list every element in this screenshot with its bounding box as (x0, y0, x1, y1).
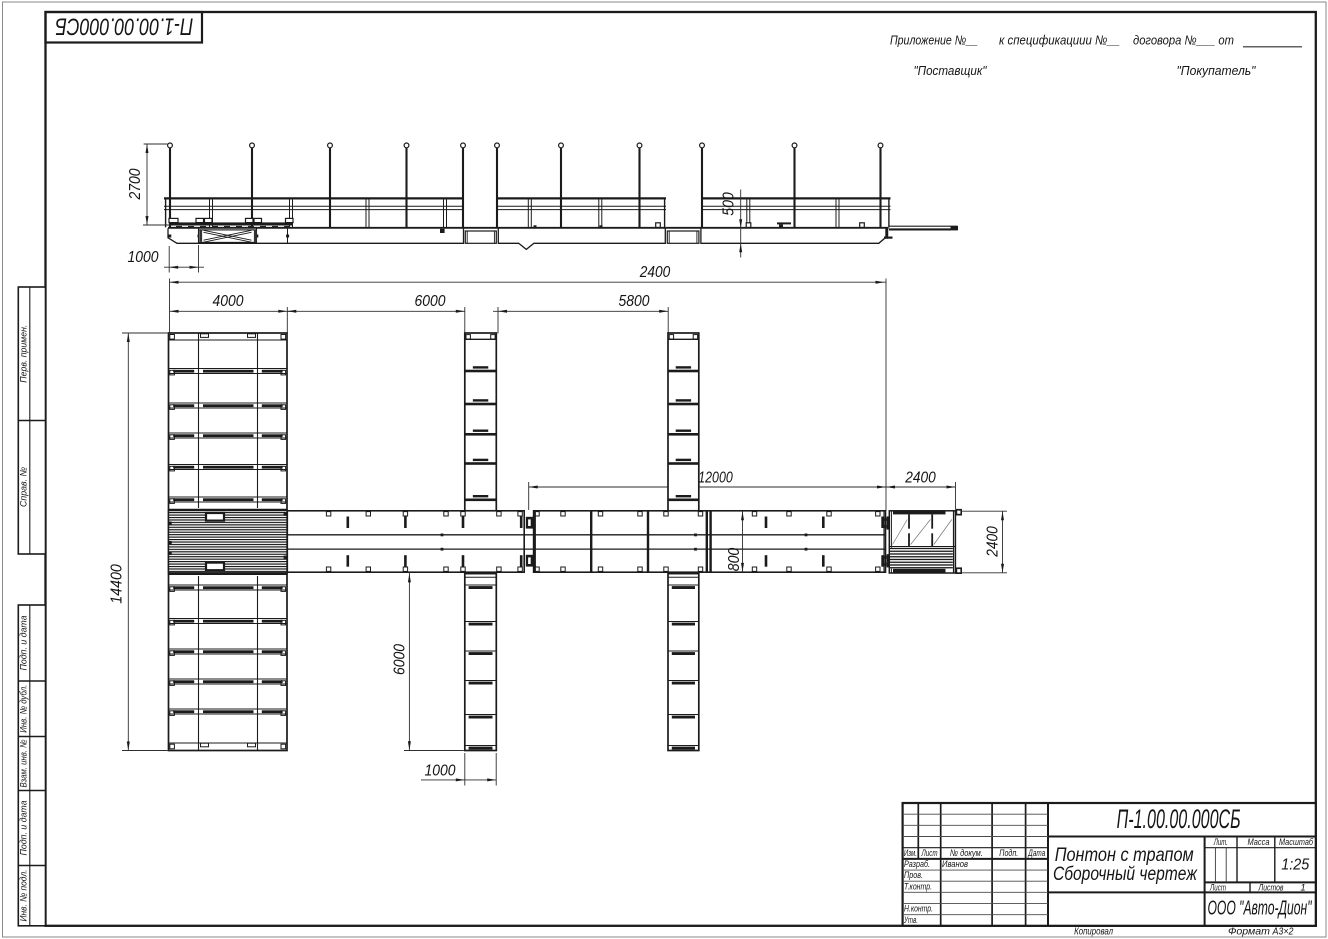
svg-text:Взам. инв. №: Взам. инв. № (18, 740, 29, 788)
svg-text:Дата: Дата (1028, 848, 1046, 859)
svg-text:Перв. примен.: Перв. примен. (18, 325, 29, 383)
svg-text:№ докум.: № докум. (950, 848, 983, 859)
svg-text:ООО "Авто-Дион": ООО "Авто-Дион" (1208, 898, 1313, 920)
svg-text:Утв.: Утв. (903, 915, 918, 926)
svg-text:Лист: Лист (921, 848, 938, 859)
svg-text:Формат: Формат (1228, 926, 1270, 938)
svg-text:Масштаб: Масштаб (1279, 837, 1314, 848)
svg-text:12000: 12000 (698, 469, 733, 486)
svg-text:1000: 1000 (425, 762, 456, 779)
svg-text:к спецификациии №__: к спецификациии №__ (999, 33, 1120, 48)
svg-text:Лист: Лист (1209, 883, 1226, 894)
svg-text:Инв. № дубл.: Инв. № дубл. (18, 685, 29, 733)
svg-text:Изм.: Изм. (904, 848, 917, 859)
svg-text:Подп. и дата: Подп. и дата (18, 616, 29, 671)
svg-text:4000: 4000 (213, 293, 244, 310)
svg-text:Копировал: Копировал (1074, 926, 1113, 938)
svg-text:2400: 2400 (639, 264, 671, 281)
svg-text:6000: 6000 (415, 293, 446, 310)
svg-text:Листов: Листов (1258, 883, 1284, 894)
svg-text:6000: 6000 (392, 644, 409, 675)
svg-text:А3×2: А3×2 (1272, 926, 1294, 938)
svg-text:Пров.: Пров. (904, 870, 923, 881)
svg-text:Понтон с трапом: Понтон с трапом (1055, 845, 1194, 866)
svg-text:Подп. и дата: Подп. и дата (18, 801, 29, 856)
svg-text:800: 800 (726, 547, 743, 571)
svg-text:2400: 2400 (985, 526, 1002, 558)
svg-text:1000: 1000 (128, 249, 159, 266)
svg-text:2700: 2700 (127, 168, 144, 200)
svg-text:2400: 2400 (904, 469, 936, 486)
svg-text:договора №___ от: договора №___ от (1133, 33, 1234, 48)
svg-text:Справ. №: Справ. № (18, 467, 29, 507)
svg-text:14400: 14400 (109, 564, 126, 604)
svg-text:Т.контр.: Т.контр. (904, 881, 932, 892)
svg-text:Масса: Масса (1248, 837, 1270, 848)
svg-text:1:25: 1:25 (1281, 857, 1309, 874)
svg-text:1: 1 (1300, 883, 1305, 894)
svg-text:"Поставщик": "Поставщик" (914, 64, 988, 78)
svg-text:Приложение №__: Приложение №__ (890, 33, 978, 48)
svg-text:Н.контр.: Н.контр. (904, 904, 933, 915)
svg-text:П-1.00.00.000СБ: П-1.00.00.000СБ (1117, 804, 1241, 834)
svg-text:5800: 5800 (619, 293, 650, 310)
svg-text:Разраб.: Разраб. (904, 859, 930, 870)
svg-text:Сборочный чертеж: Сборочный чертеж (1053, 864, 1198, 885)
svg-text:"Покупатель": "Покупатель" (1177, 64, 1257, 78)
svg-text:Иванов: Иванов (942, 859, 968, 870)
svg-text:500: 500 (721, 192, 738, 216)
svg-text:П-1.00.00.000СБ: П-1.00.00.000СБ (55, 13, 193, 40)
svg-text:Лит.: Лит. (1213, 837, 1228, 848)
svg-text:Инв. № подл.: Инв. № подл. (18, 870, 29, 922)
svg-text:Подп.: Подп. (999, 848, 1018, 859)
